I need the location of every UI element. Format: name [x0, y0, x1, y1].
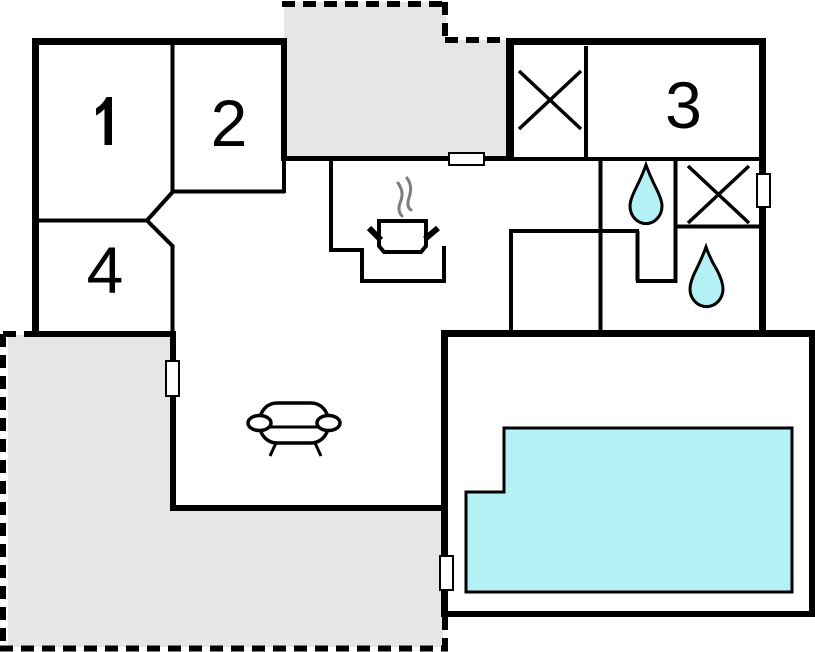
svg-text:3: 3 [665, 68, 702, 142]
svg-text:4: 4 [87, 233, 124, 307]
svg-text:2: 2 [211, 86, 248, 160]
